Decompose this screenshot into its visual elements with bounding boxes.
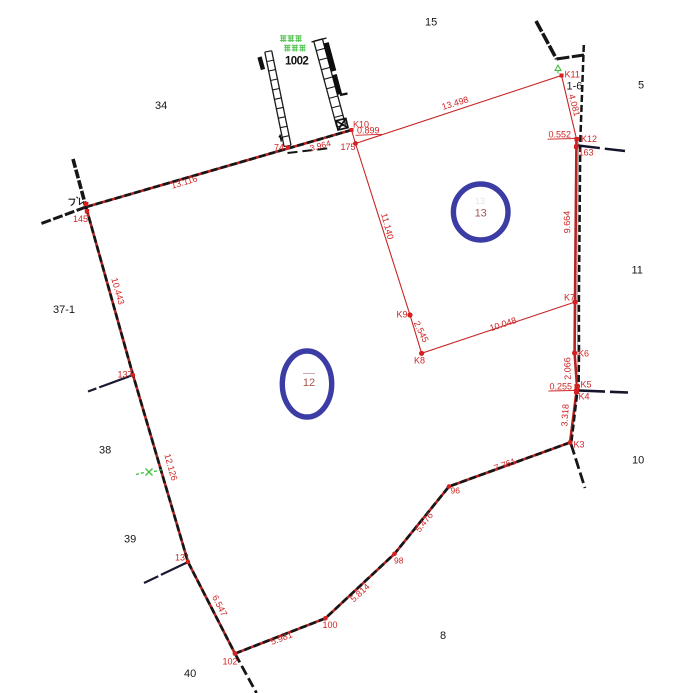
svg-text:K11: K11 [565,70,580,80]
svg-text:39: 39 [124,534,136,546]
svg-text:1-6: 1-6 [567,81,583,93]
svg-text:96: 96 [451,486,461,496]
svg-text:K8: K8 [414,356,425,366]
svg-text:13: 13 [475,196,485,206]
svg-text:K9: K9 [396,310,407,320]
svg-text:3.318: 3.318 [559,404,571,427]
svg-text:K4: K4 [579,392,590,402]
svg-text:175: 175 [341,142,356,152]
svg-text:9.664: 9.664 [562,211,572,234]
svg-text:37-1: 37-1 [53,304,75,316]
svg-text:K5: K5 [581,380,592,390]
svg-text:0.552: 0.552 [549,130,572,140]
svg-text:K12: K12 [581,134,597,144]
svg-text:12: 12 [303,377,315,389]
svg-text:100: 100 [323,620,338,630]
svg-text:40: 40 [184,668,196,680]
svg-text:74: 74 [274,143,284,153]
svg-text:K7: K7 [564,293,575,303]
svg-text:102: 102 [223,657,238,667]
svg-text:137: 137 [118,370,133,380]
svg-text:11: 11 [632,265,643,277]
svg-text:131: 131 [175,553,190,563]
svg-text:2.066: 2.066 [562,357,572,380]
svg-text:163: 163 [579,148,594,158]
svg-text:34: 34 [155,100,167,112]
svg-text:10: 10 [632,455,644,467]
svg-text:K6: K6 [578,349,589,359]
svg-text:0.255: 0.255 [550,382,573,392]
svg-text:8: 8 [440,630,446,642]
svg-text:38: 38 [99,445,111,457]
svg-text:1002: 1002 [285,56,308,68]
svg-text:0.899: 0.899 [357,126,380,136]
svg-text:5: 5 [638,80,644,92]
svg-text:K3: K3 [574,440,585,450]
svg-text:13: 13 [475,208,487,220]
svg-text:15: 15 [425,17,437,29]
svg-text:98: 98 [394,556,404,566]
svg-text:145: 145 [73,214,88,224]
